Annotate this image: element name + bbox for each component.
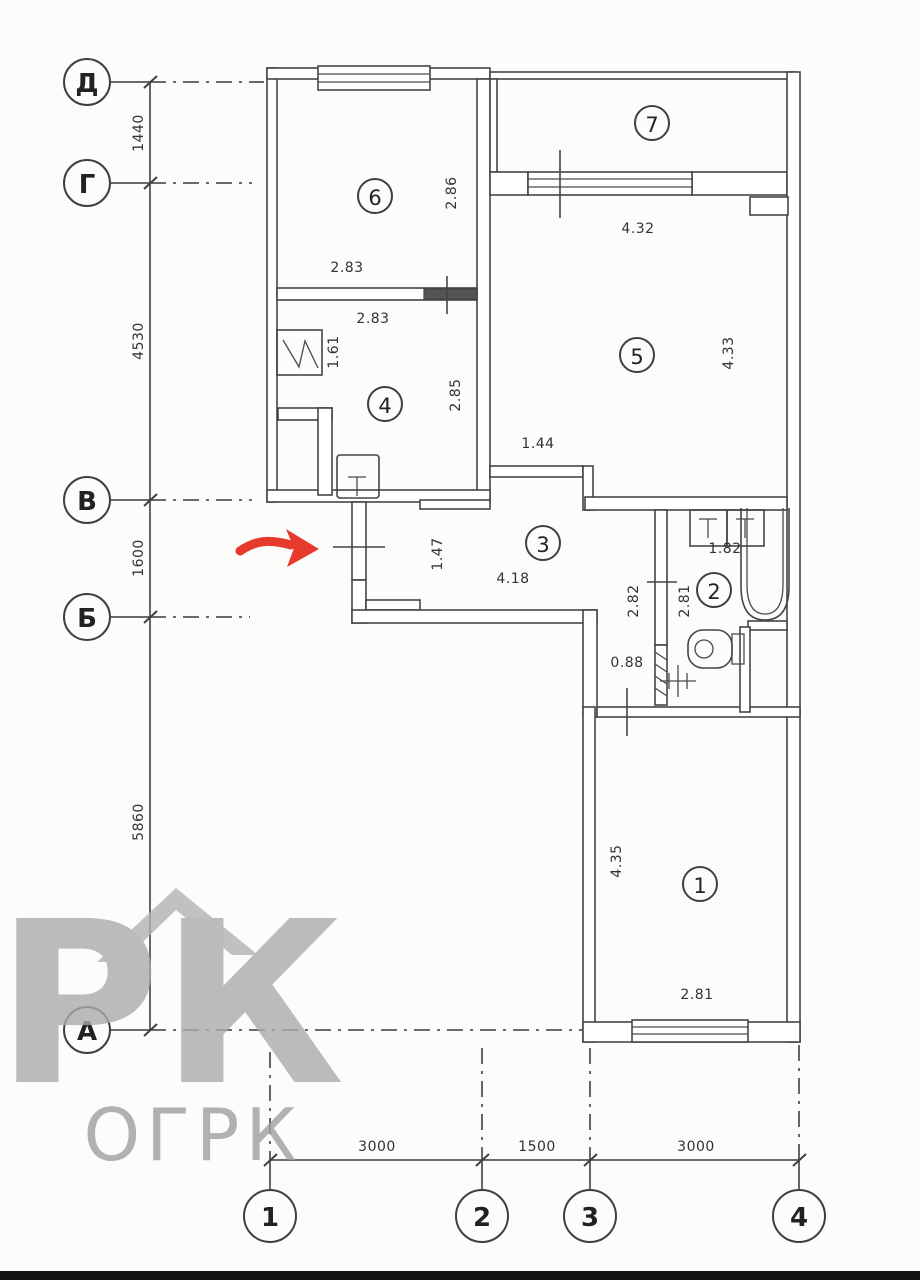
red-arrow-icon xyxy=(240,529,319,567)
dim-opening-5-3: 1.44 xyxy=(521,436,554,452)
room-label-6: 6 xyxy=(358,179,392,213)
dim-niche: 0.88 xyxy=(610,655,643,671)
dim-wc-left: 2.82 xyxy=(626,584,642,617)
room-label-3: 3 xyxy=(526,526,560,560)
svg-text:3: 3 xyxy=(536,533,549,557)
watermark: РК ОГРК xyxy=(0,874,344,1177)
svg-text:7: 7 xyxy=(645,113,658,137)
svg-text:4: 4 xyxy=(378,394,391,418)
dim-room5-height: 4.33 xyxy=(721,336,737,369)
room-label-7: 7 xyxy=(635,106,669,140)
dim-axis-3000-left: 3000 xyxy=(358,1139,396,1155)
room-label-1: 1 xyxy=(683,867,717,901)
axis-row-v: В xyxy=(64,477,110,523)
dim-axis-1600: 1600 xyxy=(131,539,147,577)
axis-row-v-label: В xyxy=(77,487,97,517)
room-label-5: 5 xyxy=(620,338,654,372)
axis-col-2: 2 xyxy=(456,1190,508,1242)
dim-room1-width: 2.81 xyxy=(680,987,713,1003)
dim-room5-width: 4.32 xyxy=(621,221,654,237)
svg-text:2: 2 xyxy=(707,580,720,604)
window-room6 xyxy=(318,66,430,90)
dim-hall-length: 4.18 xyxy=(496,571,529,587)
dim-wc-right: 2.81 xyxy=(677,584,693,617)
dim-room6-height: 2.86 xyxy=(444,176,460,209)
axis-col-1-label: 1 xyxy=(261,1203,279,1233)
axis-col-3-label: 3 xyxy=(581,1203,599,1233)
axis-col-4-label: 4 xyxy=(790,1203,808,1233)
room-label-4: 4 xyxy=(368,387,402,421)
axis-row-d-label: Д xyxy=(75,69,98,99)
door-window-ticks xyxy=(333,150,677,736)
axis-col-2-label: 2 xyxy=(473,1203,491,1233)
floor-plan-drawing: Д Г В Б А 1440 4530 1600 5860 xyxy=(0,0,920,1280)
axis-row-d: Д xyxy=(64,59,110,105)
watermark-text: ОГРК xyxy=(83,1093,302,1177)
svg-text:6: 6 xyxy=(368,186,381,210)
axis-col-1: 1 xyxy=(244,1190,296,1242)
axis-col-4: 4 xyxy=(773,1190,825,1242)
dim-room4-width: 2.83 xyxy=(356,311,389,327)
window-room1 xyxy=(632,1020,748,1042)
dim-kitchen-sink: 1.61 xyxy=(326,335,342,368)
svg-text:1: 1 xyxy=(693,874,706,898)
floor-plan-page: Д Г В Б А 1440 4530 1600 5860 xyxy=(0,0,920,1280)
room-label-2: 2 xyxy=(697,573,731,607)
dim-room1-height: 4.35 xyxy=(609,844,625,877)
axis-col-3: 3 xyxy=(564,1190,616,1242)
dim-axis-1500: 1500 xyxy=(518,1139,556,1155)
axis-row-b-label: Б xyxy=(77,604,97,634)
svg-text:5: 5 xyxy=(630,345,643,369)
bathtub-icon xyxy=(741,508,789,620)
dim-axis-3000-right: 3000 xyxy=(677,1139,715,1155)
axis-row-g: Г xyxy=(64,160,110,206)
dim-wc-width: 1.82 xyxy=(708,541,741,557)
dim-room4-height: 2.85 xyxy=(448,378,464,411)
toilet-icon xyxy=(688,630,744,668)
dim-axis-4530: 4530 xyxy=(131,322,147,360)
photo-edge-strip xyxy=(0,1271,920,1280)
axis-row-b: Б xyxy=(64,594,110,640)
window-room7-room5 xyxy=(528,172,692,195)
dim-hall-width: 1.47 xyxy=(430,537,446,570)
windows xyxy=(318,66,748,1042)
axis-row-g-label: Г xyxy=(79,170,96,200)
kitchen-sink-icon xyxy=(277,330,322,375)
dim-room6-width: 2.83 xyxy=(330,260,363,276)
dim-axis-5860: 5860 xyxy=(131,803,147,841)
dim-axis-1440: 1440 xyxy=(131,114,147,152)
